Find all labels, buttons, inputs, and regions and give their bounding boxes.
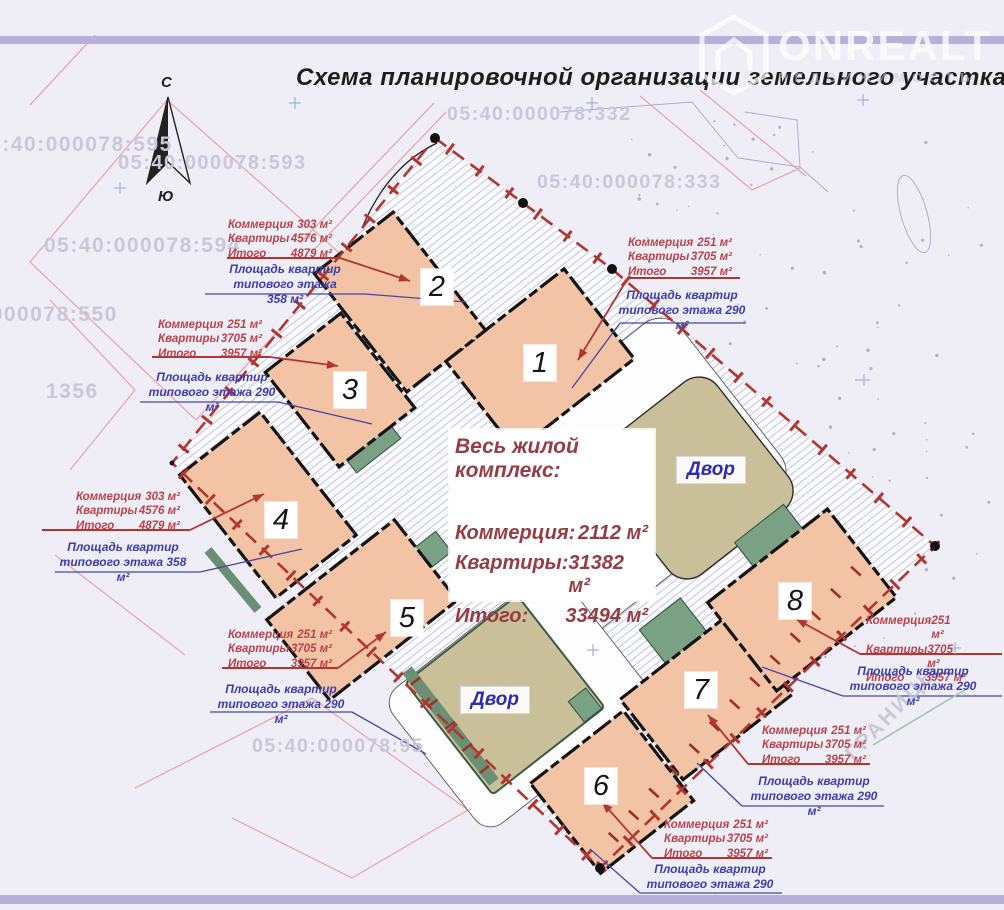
- building-6-number: 6: [585, 768, 617, 804]
- annotation-building-4-floor: Площадь квартиртипового этажа 358 м²: [58, 540, 188, 585]
- cadastral-593: 05:40:000078:593: [118, 152, 307, 175]
- annotation-building-1-floor: Площадь квартиртипового этажа 290 м²: [612, 288, 752, 333]
- cadastral-95: 05:40:000078:95: [252, 735, 424, 758]
- frame-bar-bottom: [0, 895, 1004, 904]
- courtyard-bottom-label: Двор: [460, 686, 530, 714]
- complex-summary-box: Весь жилой комплекс: Коммерция:2112 м² К…: [450, 430, 654, 600]
- cadastral-594: 05:40:000078:594: [44, 234, 241, 258]
- cadastral-333: 05:40:000078:333: [537, 171, 721, 194]
- logo-subtitle: НЕДВИЖИМОСТЬ: [778, 70, 992, 85]
- building-2-number: 2: [421, 269, 453, 305]
- annotation-building-7-floor: Площадь квартиртипового этажа 290 м²: [746, 774, 882, 819]
- annotation-building-8-floor: Площадь квартиртипового этажа 290 м²: [848, 664, 978, 709]
- summary-apartments-label: Квартиры:: [455, 552, 568, 598]
- annotation-building-5-areas: Коммерция251 м² Квартиры3705 м² Итого395…: [228, 628, 332, 671]
- building-5-number: 5: [391, 600, 423, 636]
- annotation-building-4-areas: Коммерция303 м² Квартиры4576 м² Итого487…: [76, 490, 180, 533]
- building-1-number: 1: [524, 345, 556, 381]
- annotation-building-2-areas: Коммерция303 м² Квартиры4576 м² Итого487…: [228, 218, 332, 261]
- site-plan-page: Схема планировочной организации земельно…: [0, 0, 1004, 910]
- annotation-building-7-areas: Коммерция251 м² Квартиры3705 м² Итого395…: [762, 724, 866, 767]
- summary-commerce-value: 2112 м²: [578, 522, 648, 545]
- cadastral-1356: 1356: [46, 380, 99, 404]
- summary-title: Весь жилой комплекс:: [455, 435, 650, 483]
- onrealt-house-icon: [698, 14, 770, 96]
- annotation-building-6-areas: Коммерция251 м² Квартиры3705 м² Итого395…: [664, 818, 768, 861]
- annotation-building-3-floor: Площадь квартиртипового этажа 290 м²: [148, 370, 276, 415]
- summary-commerce-label: Коммерция:: [455, 522, 575, 545]
- summary-total-value: 33494 м²: [565, 605, 648, 628]
- annotation-building-5-floor: Площадь квартиртипового этажа 290 м²: [216, 682, 346, 727]
- annotation-building-3-areas: Коммерция251 м² Квартиры3705 м² Итого395…: [158, 318, 262, 361]
- building-3-number: 3: [334, 372, 366, 408]
- logo-name: ONREALT: [778, 25, 992, 67]
- building-4-number: 4: [265, 502, 297, 538]
- courtyard-top-label: Двор: [676, 456, 746, 484]
- building-7-number: 7: [685, 672, 717, 708]
- building-8-number: 8: [779, 583, 811, 619]
- annotation-building-1-areas: Коммерция251 м² Квартиры3705 м² Итого395…: [628, 236, 732, 279]
- cadastral-332: 05:40:000078:332: [447, 103, 631, 126]
- cadastral-550: 05:40:000078:550: [0, 303, 118, 327]
- compass-south-label: Ю: [158, 188, 174, 205]
- compass-north-label: С: [161, 74, 172, 91]
- summary-total-label: Итого:: [455, 605, 528, 628]
- summary-apartments-value: 31382 м²: [568, 552, 648, 598]
- onrealt-logo: ONREALT НЕДВИЖИМОСТЬ: [698, 14, 992, 96]
- annotation-building-2-floor: Площадь квартиртипового этажа 358 м²: [222, 262, 348, 307]
